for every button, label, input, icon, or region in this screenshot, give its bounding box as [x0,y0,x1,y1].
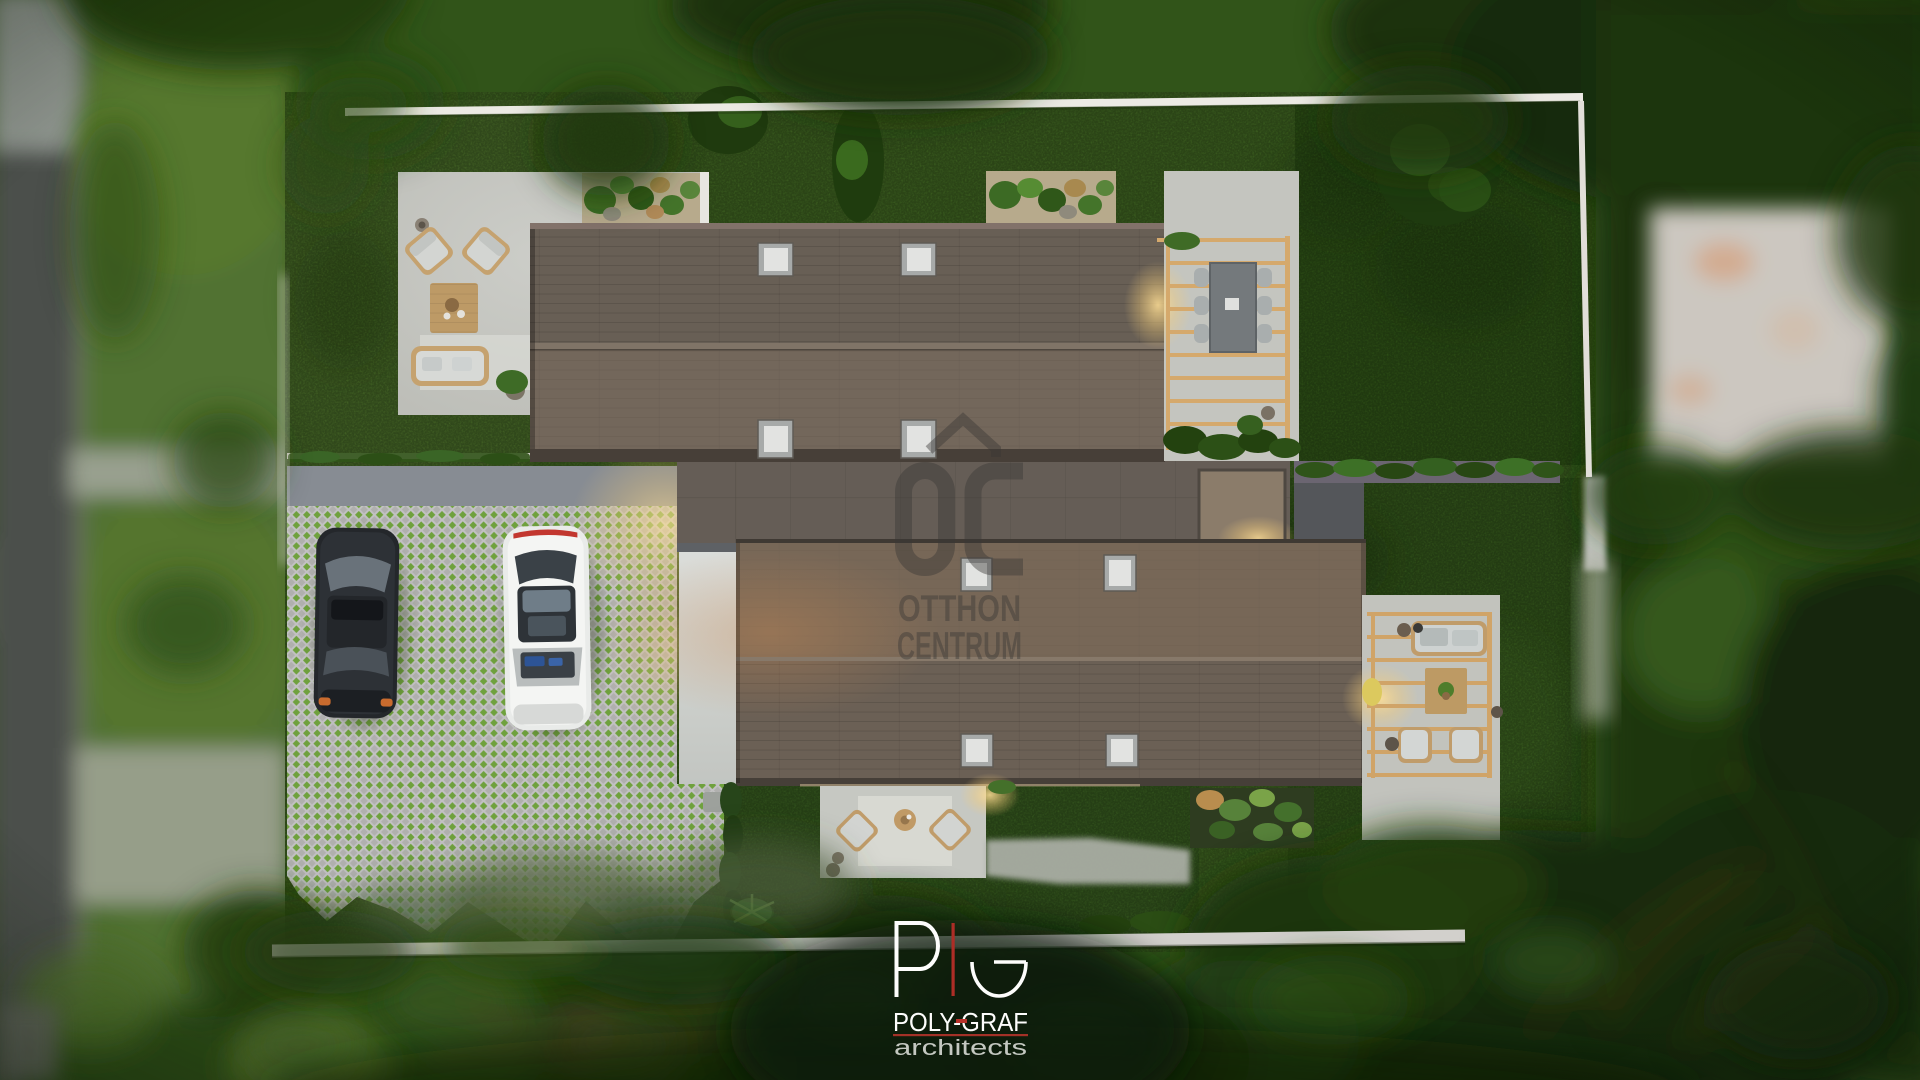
svg-text:CENTRUM: CENTRUM [897,625,1022,668]
svg-text:architects: architects [894,1035,1027,1060]
svg-text:OTTHON: OTTHON [898,588,1021,629]
